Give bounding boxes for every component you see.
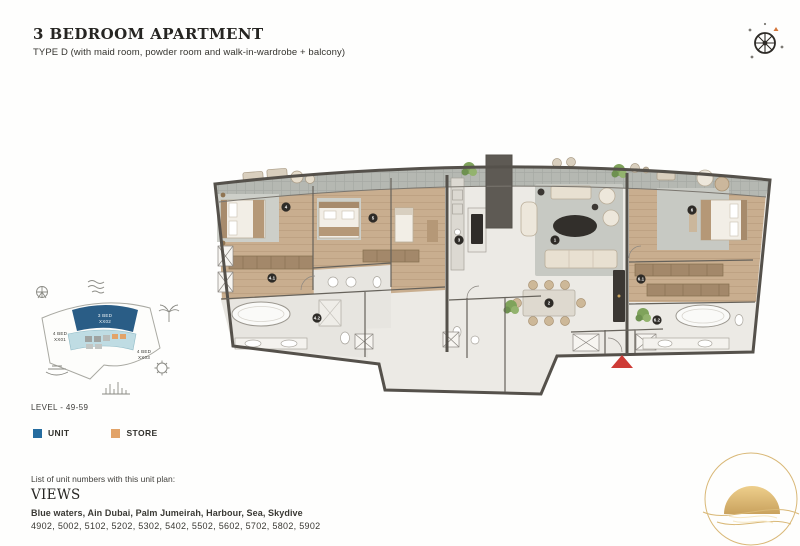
- lamp-icon: [221, 193, 226, 198]
- ferris-wheel-icon: [37, 287, 48, 299]
- unit-color-swatch: [33, 429, 42, 438]
- plant-icon: [612, 164, 628, 178]
- unit-list-label: List of unit numbers with this unit plan…: [31, 474, 175, 484]
- skydive-compass-icon: [155, 361, 170, 376]
- svg-text:XX03: XX03: [138, 355, 150, 360]
- kitchen-sink: [455, 229, 461, 235]
- sink: [245, 340, 261, 347]
- coffee-table: [553, 215, 597, 237]
- sink: [281, 340, 297, 347]
- side-table: [538, 189, 545, 196]
- svg-text:XX02: XX02: [99, 319, 111, 324]
- cooktop: [471, 214, 483, 244]
- views-title: VIEWS: [31, 487, 81, 503]
- palm-tree-icon: [159, 305, 179, 322]
- svg-text:4.2: 4.2: [314, 316, 321, 321]
- pouf: [715, 177, 729, 191]
- legend-unit: UNIT: [33, 428, 69, 438]
- svg-text:6: 6: [691, 208, 694, 213]
- desk: [427, 220, 438, 242]
- waves-icon: [88, 281, 104, 294]
- svg-text:4: 4: [285, 205, 288, 210]
- views-list: Blue waters, Ain Dubai, Palm Jumeirah, H…: [31, 508, 303, 518]
- toilet: [341, 332, 350, 344]
- svg-text:6.1: 6.1: [638, 277, 645, 282]
- sink: [658, 340, 672, 347]
- svg-text:3 BED: 3 BED: [98, 313, 113, 318]
- page-title: 3 BEDROOM APARTMENT: [33, 25, 264, 43]
- svg-text:1: 1: [554, 238, 557, 243]
- svg-text:4 BED: 4 BED: [53, 331, 68, 336]
- level-label: LEVEL - 49-59: [31, 403, 88, 412]
- vanity: [643, 338, 729, 349]
- armchair: [603, 210, 619, 226]
- brochure-page: 3 BEDROOM APARTMENT TYPE D (with maid ro…: [0, 0, 800, 546]
- legend-store-label: STORE: [126, 428, 157, 438]
- legend-store: STORE: [111, 428, 157, 438]
- svg-text:4 BED: 4 BED: [137, 349, 152, 354]
- toilet: [735, 315, 743, 326]
- sink: [698, 340, 712, 347]
- svg-text:2: 2: [548, 301, 551, 306]
- page-subtitle: TYPE D (with maid room, powder room and …: [33, 47, 345, 58]
- floor-plan: 1 2 3 4 4.1 4.2 5 6 6.1 6.2: [205, 150, 780, 400]
- tv-bench: [551, 186, 591, 199]
- chaise: [521, 202, 537, 236]
- svg-text:4.1: 4.1: [269, 276, 276, 281]
- key-plan: 3 BED XX02 4 BED XX01 4 BED XX03: [26, 274, 181, 400]
- sink: [328, 277, 338, 287]
- brand-logo-sun-waves-icon: [701, 452, 800, 546]
- armchair: [599, 188, 615, 204]
- svg-text:XX01: XX01: [54, 337, 66, 342]
- sink: [471, 336, 479, 344]
- entry-arrow-icon: [611, 355, 633, 368]
- unit-numbers-list: 4902, 5002, 5102, 5202, 5302, 5402, 5502…: [31, 521, 320, 531]
- compass-icon: [741, 17, 789, 65]
- svg-text:5: 5: [372, 216, 375, 221]
- legend: UNIT STORE: [33, 428, 158, 438]
- north-marker-icon: [774, 27, 779, 31]
- kitchen-counter: [451, 178, 464, 270]
- toilet: [373, 277, 381, 288]
- bathtub: [232, 302, 290, 326]
- plant-icon: [462, 162, 478, 176]
- legend-unit-label: UNIT: [48, 428, 69, 438]
- side-table: [592, 204, 599, 211]
- skyline-icon: [102, 382, 130, 394]
- svg-text:3: 3: [458, 238, 461, 243]
- sofa: [545, 250, 617, 268]
- svg-text:6.2: 6.2: [654, 318, 661, 323]
- store-color-swatch: [111, 429, 120, 438]
- bathtub: [676, 305, 730, 327]
- sink: [346, 277, 356, 287]
